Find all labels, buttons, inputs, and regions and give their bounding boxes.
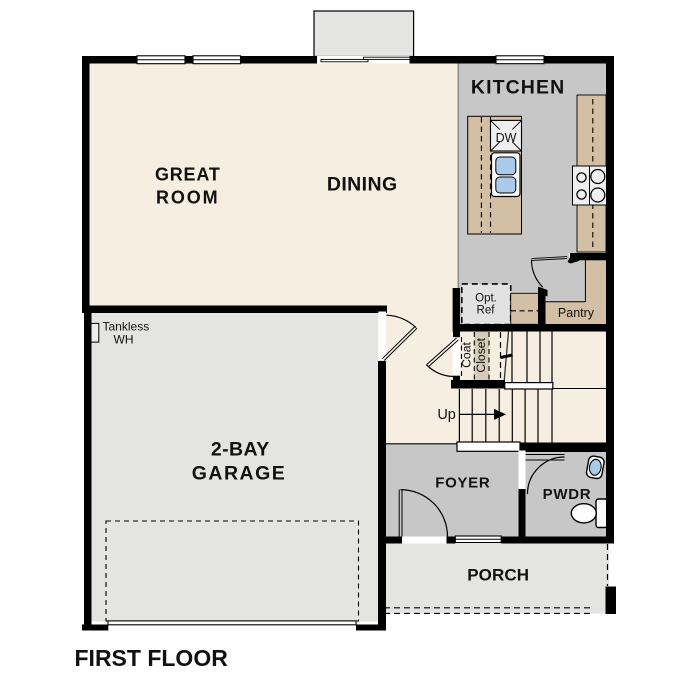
svg-text:Up: Up [437, 407, 456, 423]
svg-text:Opt.: Opt. [475, 293, 497, 305]
svg-text:FOYER: FOYER [435, 475, 490, 492]
svg-text:GREAT: GREAT [155, 165, 221, 185]
svg-text:Ref: Ref [477, 304, 496, 316]
svg-text:2-BAY: 2-BAY [211, 439, 270, 461]
svg-text:KITCHEN: KITCHEN [471, 77, 565, 99]
svg-text:Coat: Coat [460, 342, 474, 368]
svg-text:FIRST FLOOR: FIRST FLOOR [75, 645, 229, 671]
svg-text:PWDR: PWDR [543, 486, 592, 503]
svg-text:ROOM: ROOM [156, 188, 220, 208]
svg-text:WH: WH [114, 333, 134, 347]
svg-text:Pantry: Pantry [558, 306, 595, 320]
svg-text:Closet: Closet [474, 337, 488, 372]
svg-text:Tankless: Tankless [103, 320, 150, 334]
svg-text:GARAGE: GARAGE [192, 462, 287, 484]
svg-text:DW: DW [496, 131, 517, 145]
svg-text:DINING: DINING [327, 173, 398, 195]
svg-text:PORCH: PORCH [467, 565, 529, 584]
